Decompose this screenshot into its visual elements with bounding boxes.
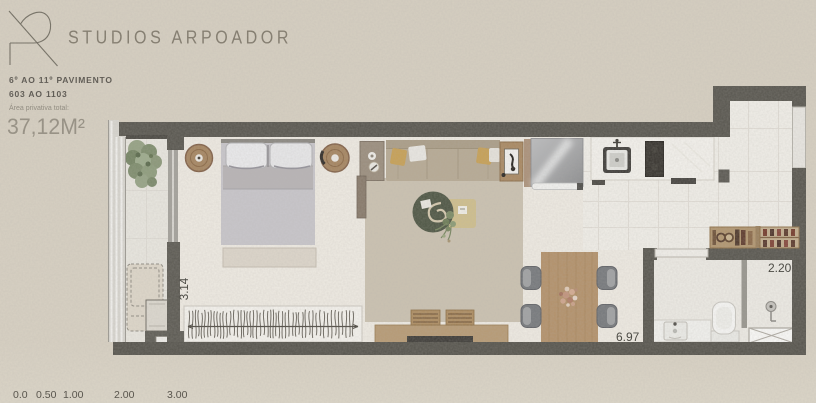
svg-text:6.97: 6.97 (616, 330, 640, 344)
svg-text:3.14: 3.14 (179, 277, 191, 300)
svg-text:2.20: 2.20 (768, 261, 792, 275)
svg-text:2.00: 2.00 (114, 389, 135, 401)
svg-text:1.00: 1.00 (63, 389, 84, 401)
svg-text:3.00: 3.00 (167, 389, 188, 401)
svg-text:0.50: 0.50 (36, 389, 57, 401)
svg-text:0.0: 0.0 (13, 389, 28, 401)
